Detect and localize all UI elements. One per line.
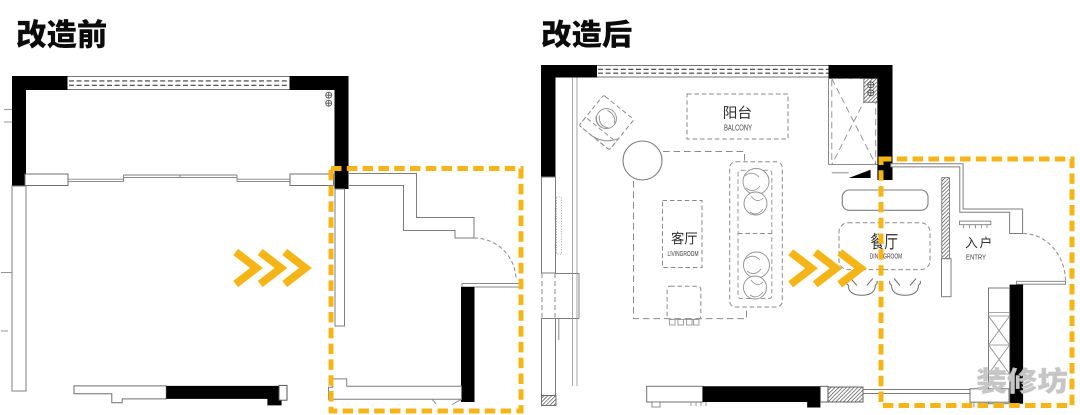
svg-text:BALCONY: BALCONY <box>724 124 752 133</box>
svg-text:LIVINGROOM: LIVINGROOM <box>668 251 699 258</box>
svg-text:DININGROOM: DININGROOM <box>870 253 903 260</box>
svg-text:ENTRY: ENTRY <box>966 253 986 262</box>
